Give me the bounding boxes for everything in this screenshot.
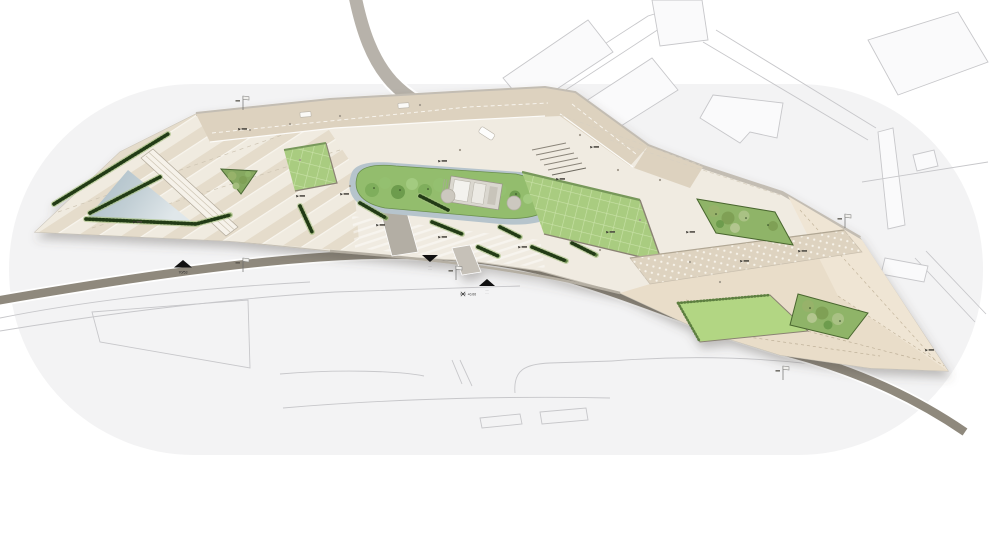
- paved-pad: [507, 196, 521, 210]
- spot-level-label: +0.00: [468, 293, 477, 297]
- site-plan-drawing: 70/53 ····· ···· ····· ···· +0.00: [0, 0, 990, 557]
- screenshot-canvas: 70/53 ····· ···· ····· ···· +0.00: [0, 0, 990, 557]
- entrance-down-label-2: ····: [428, 268, 431, 271]
- car-icon: [398, 103, 409, 109]
- car-icon: [300, 111, 311, 117]
- entrance-up-label-2: ····: [485, 292, 488, 295]
- entrance-left-label: 70/53: [179, 271, 188, 275]
- paved-pad: [441, 189, 455, 203]
